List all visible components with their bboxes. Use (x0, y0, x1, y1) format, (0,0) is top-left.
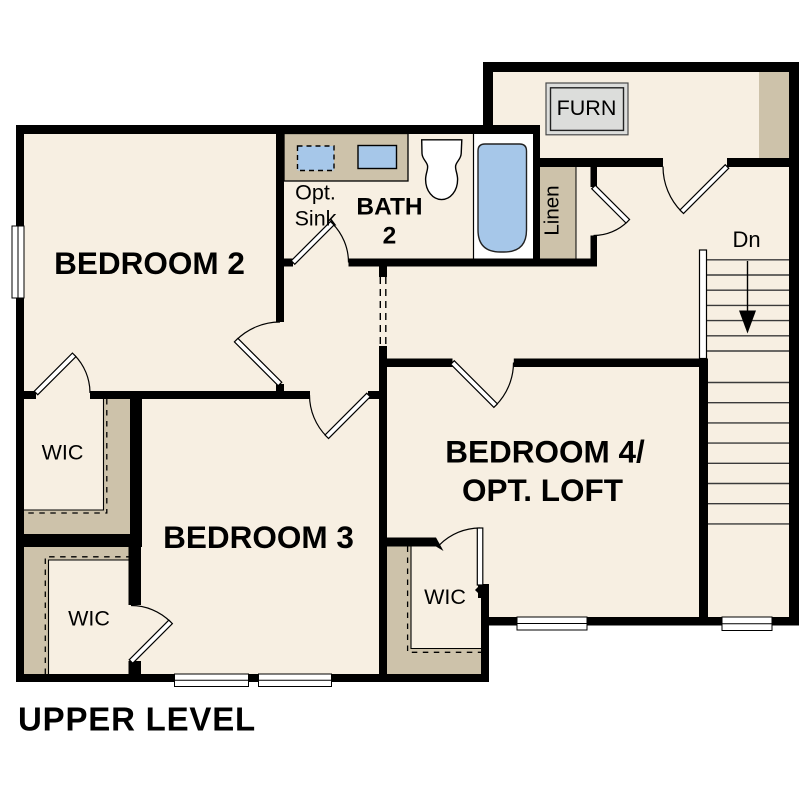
svg-text:Sink: Sink (295, 207, 337, 231)
svg-text:WIC: WIC (68, 607, 110, 631)
svg-text:Dn: Dn (732, 227, 760, 252)
svg-text:FURN: FURN (557, 96, 617, 120)
svg-text:WIC: WIC (42, 441, 84, 465)
svg-text:UPPER LEVEL: UPPER LEVEL (18, 701, 256, 738)
svg-text:BEDROOM 4/: BEDROOM 4/ (445, 434, 645, 470)
svg-text:2: 2 (383, 223, 397, 250)
svg-text:BEDROOM 2: BEDROOM 2 (54, 245, 245, 281)
svg-text:OPT. LOFT: OPT. LOFT (462, 472, 623, 508)
svg-text:Opt.: Opt. (295, 181, 336, 205)
svg-text:WIC: WIC (424, 585, 466, 609)
svg-text:BEDROOM 3: BEDROOM 3 (163, 519, 354, 555)
svg-text:BATH: BATH (356, 194, 422, 221)
svg-text:Linen: Linen (541, 185, 564, 235)
